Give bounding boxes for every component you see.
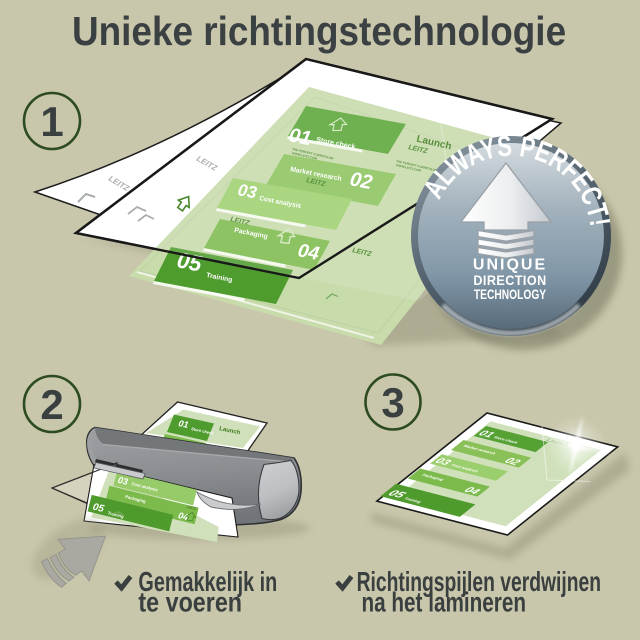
svg-text:na het lamineren: na het lamineren	[362, 588, 526, 619]
svg-text:TECHNOLOGY: TECHNOLOGY	[474, 287, 546, 303]
svg-text:3: 3	[381, 379, 404, 426]
svg-text:UNIQUE: UNIQUE	[473, 257, 547, 274]
svg-text:te voeren: te voeren	[138, 588, 242, 618]
svg-text:Unieke richtingstechnologie: Unieke richtingstechnologie	[72, 9, 566, 54]
svg-text:1: 1	[40, 98, 63, 145]
svg-text:2: 2	[40, 381, 63, 428]
svg-text:01: 01	[178, 418, 190, 430]
